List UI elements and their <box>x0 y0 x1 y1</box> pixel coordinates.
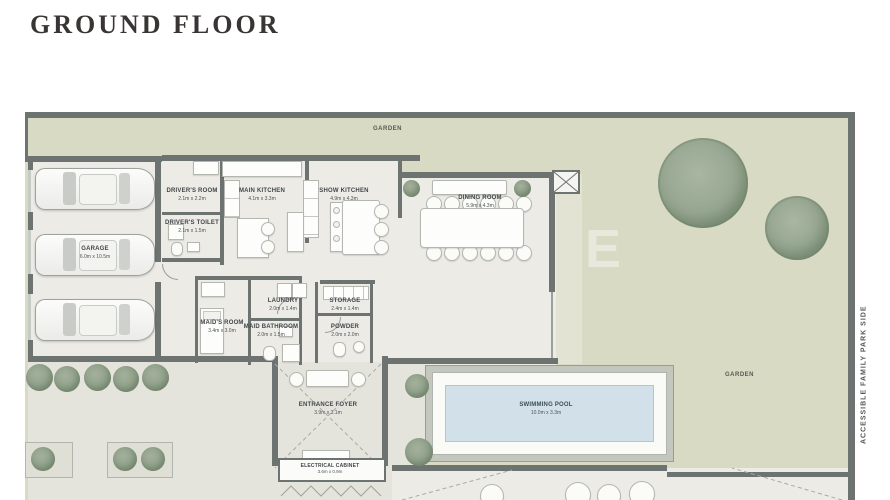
car-icon <box>35 168 155 210</box>
wall-segment <box>848 112 855 500</box>
bush-icon <box>142 364 169 391</box>
wall-segment <box>28 356 162 362</box>
wall-segment <box>28 156 33 170</box>
bed <box>200 308 224 354</box>
wall-segment <box>398 172 554 178</box>
pool-water <box>445 385 654 442</box>
plant-icon <box>514 180 531 197</box>
console-table <box>306 370 349 387</box>
wall-segment <box>315 282 318 363</box>
bush-icon <box>31 447 55 471</box>
oven-stack <box>303 180 319 238</box>
stair-zigzag-icon <box>281 484 381 498</box>
wall-segment <box>382 356 388 466</box>
chair-icon <box>374 222 389 237</box>
sideboard <box>432 180 507 195</box>
pool-deck <box>425 365 674 462</box>
wall-segment <box>155 282 161 362</box>
wall-segment <box>28 274 33 294</box>
wall-segment <box>195 276 198 363</box>
room-label-electrical-cabinet: ELECTRICAL CABINET 3.6m x 0.9m <box>280 463 380 475</box>
sink <box>187 242 200 252</box>
pillow <box>203 311 221 320</box>
wall-segment <box>370 282 373 363</box>
wall-segment <box>248 318 302 321</box>
garden-label-right: GARDEN <box>725 372 754 378</box>
sink <box>353 341 365 353</box>
bush-icon <box>54 366 80 392</box>
kitchen-counter <box>222 161 302 177</box>
wall-segment <box>155 156 161 262</box>
sink-counter <box>287 212 304 252</box>
bush-icon <box>405 374 429 398</box>
page-title: GROUND FLOOR <box>30 10 281 40</box>
wall-segment <box>315 313 373 316</box>
chair-icon <box>374 204 389 219</box>
wardrobe <box>193 161 219 175</box>
toilet-icon <box>263 346 276 361</box>
wall-segment <box>162 356 272 362</box>
plant-icon <box>403 180 420 197</box>
dining-table <box>420 208 524 248</box>
wall-segment <box>398 158 402 218</box>
car-icon <box>35 234 155 276</box>
bush-icon <box>84 364 111 391</box>
shower <box>282 344 300 362</box>
wall-segment <box>162 212 224 215</box>
car-icon <box>35 299 155 341</box>
pool-frame <box>432 372 667 455</box>
bush-icon <box>26 364 53 391</box>
chair-icon <box>261 240 275 254</box>
garage-door-line <box>28 170 31 212</box>
chair-icon <box>374 240 389 255</box>
wardrobe <box>201 282 225 297</box>
side-table <box>289 372 304 387</box>
toilet-icon <box>333 342 346 357</box>
wall-segment <box>28 340 33 362</box>
shower <box>168 224 184 240</box>
wall-segment <box>320 280 375 284</box>
sink <box>279 326 293 337</box>
tree-icon <box>765 196 829 260</box>
bush-icon <box>113 366 139 392</box>
electrical-cabinet-box: ELECTRICAL CABINET 3.6m x 0.9m <box>278 458 386 482</box>
wall-segment <box>25 112 28 162</box>
side-table <box>351 372 366 387</box>
washer <box>277 283 292 298</box>
wall-segment <box>162 258 224 262</box>
garage-door-line <box>28 230 31 274</box>
terrace-strip <box>556 174 582 364</box>
wall-segment <box>248 278 251 365</box>
watermark: E <box>585 218 621 280</box>
bush-icon <box>405 438 433 466</box>
washer <box>292 283 307 298</box>
fridge <box>224 180 240 218</box>
garage-door-line <box>28 294 31 340</box>
wall-segment <box>28 212 33 230</box>
wall-segment <box>25 112 855 118</box>
wall-segment <box>388 358 558 364</box>
hatched-column-icon <box>552 170 580 194</box>
site-plan: SWIMMING POOL 10.0m x 3.3m <box>25 112 855 500</box>
garden-label-top: GARDEN <box>373 126 402 132</box>
storage-shelf <box>323 286 369 300</box>
side-park-label: ACCESSIBLE FAMILY PARK SIDE <box>856 300 872 450</box>
bush-icon <box>141 447 165 471</box>
floor-plan-page: GROUND FLOOR SWIMMING POOL 10.0m x 3.3m <box>0 0 890 500</box>
chair-icon <box>261 222 275 236</box>
ceiling-dash-lines <box>392 468 848 500</box>
wall-segment <box>28 156 162 162</box>
toilet-icon <box>171 242 183 256</box>
window-line <box>551 292 553 358</box>
bush-icon <box>113 447 137 471</box>
tree-icon <box>658 138 748 228</box>
